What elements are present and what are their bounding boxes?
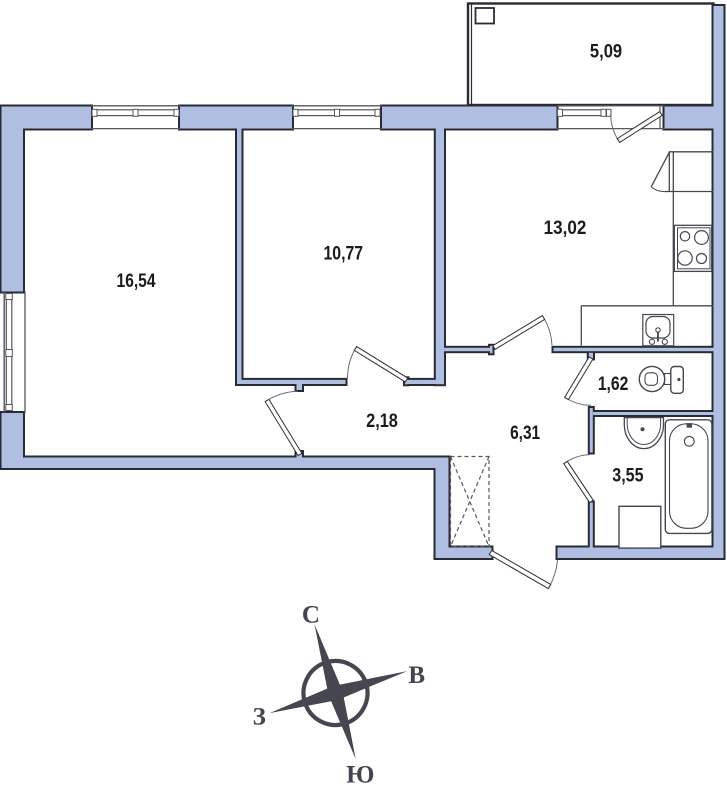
svg-text:В: В <box>408 662 425 689</box>
svg-text:13,02: 13,02 <box>544 216 587 238</box>
svg-text:16,54: 16,54 <box>117 270 156 292</box>
svg-text:С: С <box>302 602 320 629</box>
svg-text:З: З <box>253 704 266 731</box>
svg-text:3,55: 3,55 <box>612 464 643 486</box>
svg-text:6,31: 6,31 <box>510 421 540 443</box>
svg-text:5,09: 5,09 <box>590 40 622 62</box>
svg-text:10,77: 10,77 <box>323 242 363 264</box>
svg-text:Ю: Ю <box>346 761 374 786</box>
svg-text:2,18: 2,18 <box>366 410 398 432</box>
svg-text:1,62: 1,62 <box>598 373 629 395</box>
